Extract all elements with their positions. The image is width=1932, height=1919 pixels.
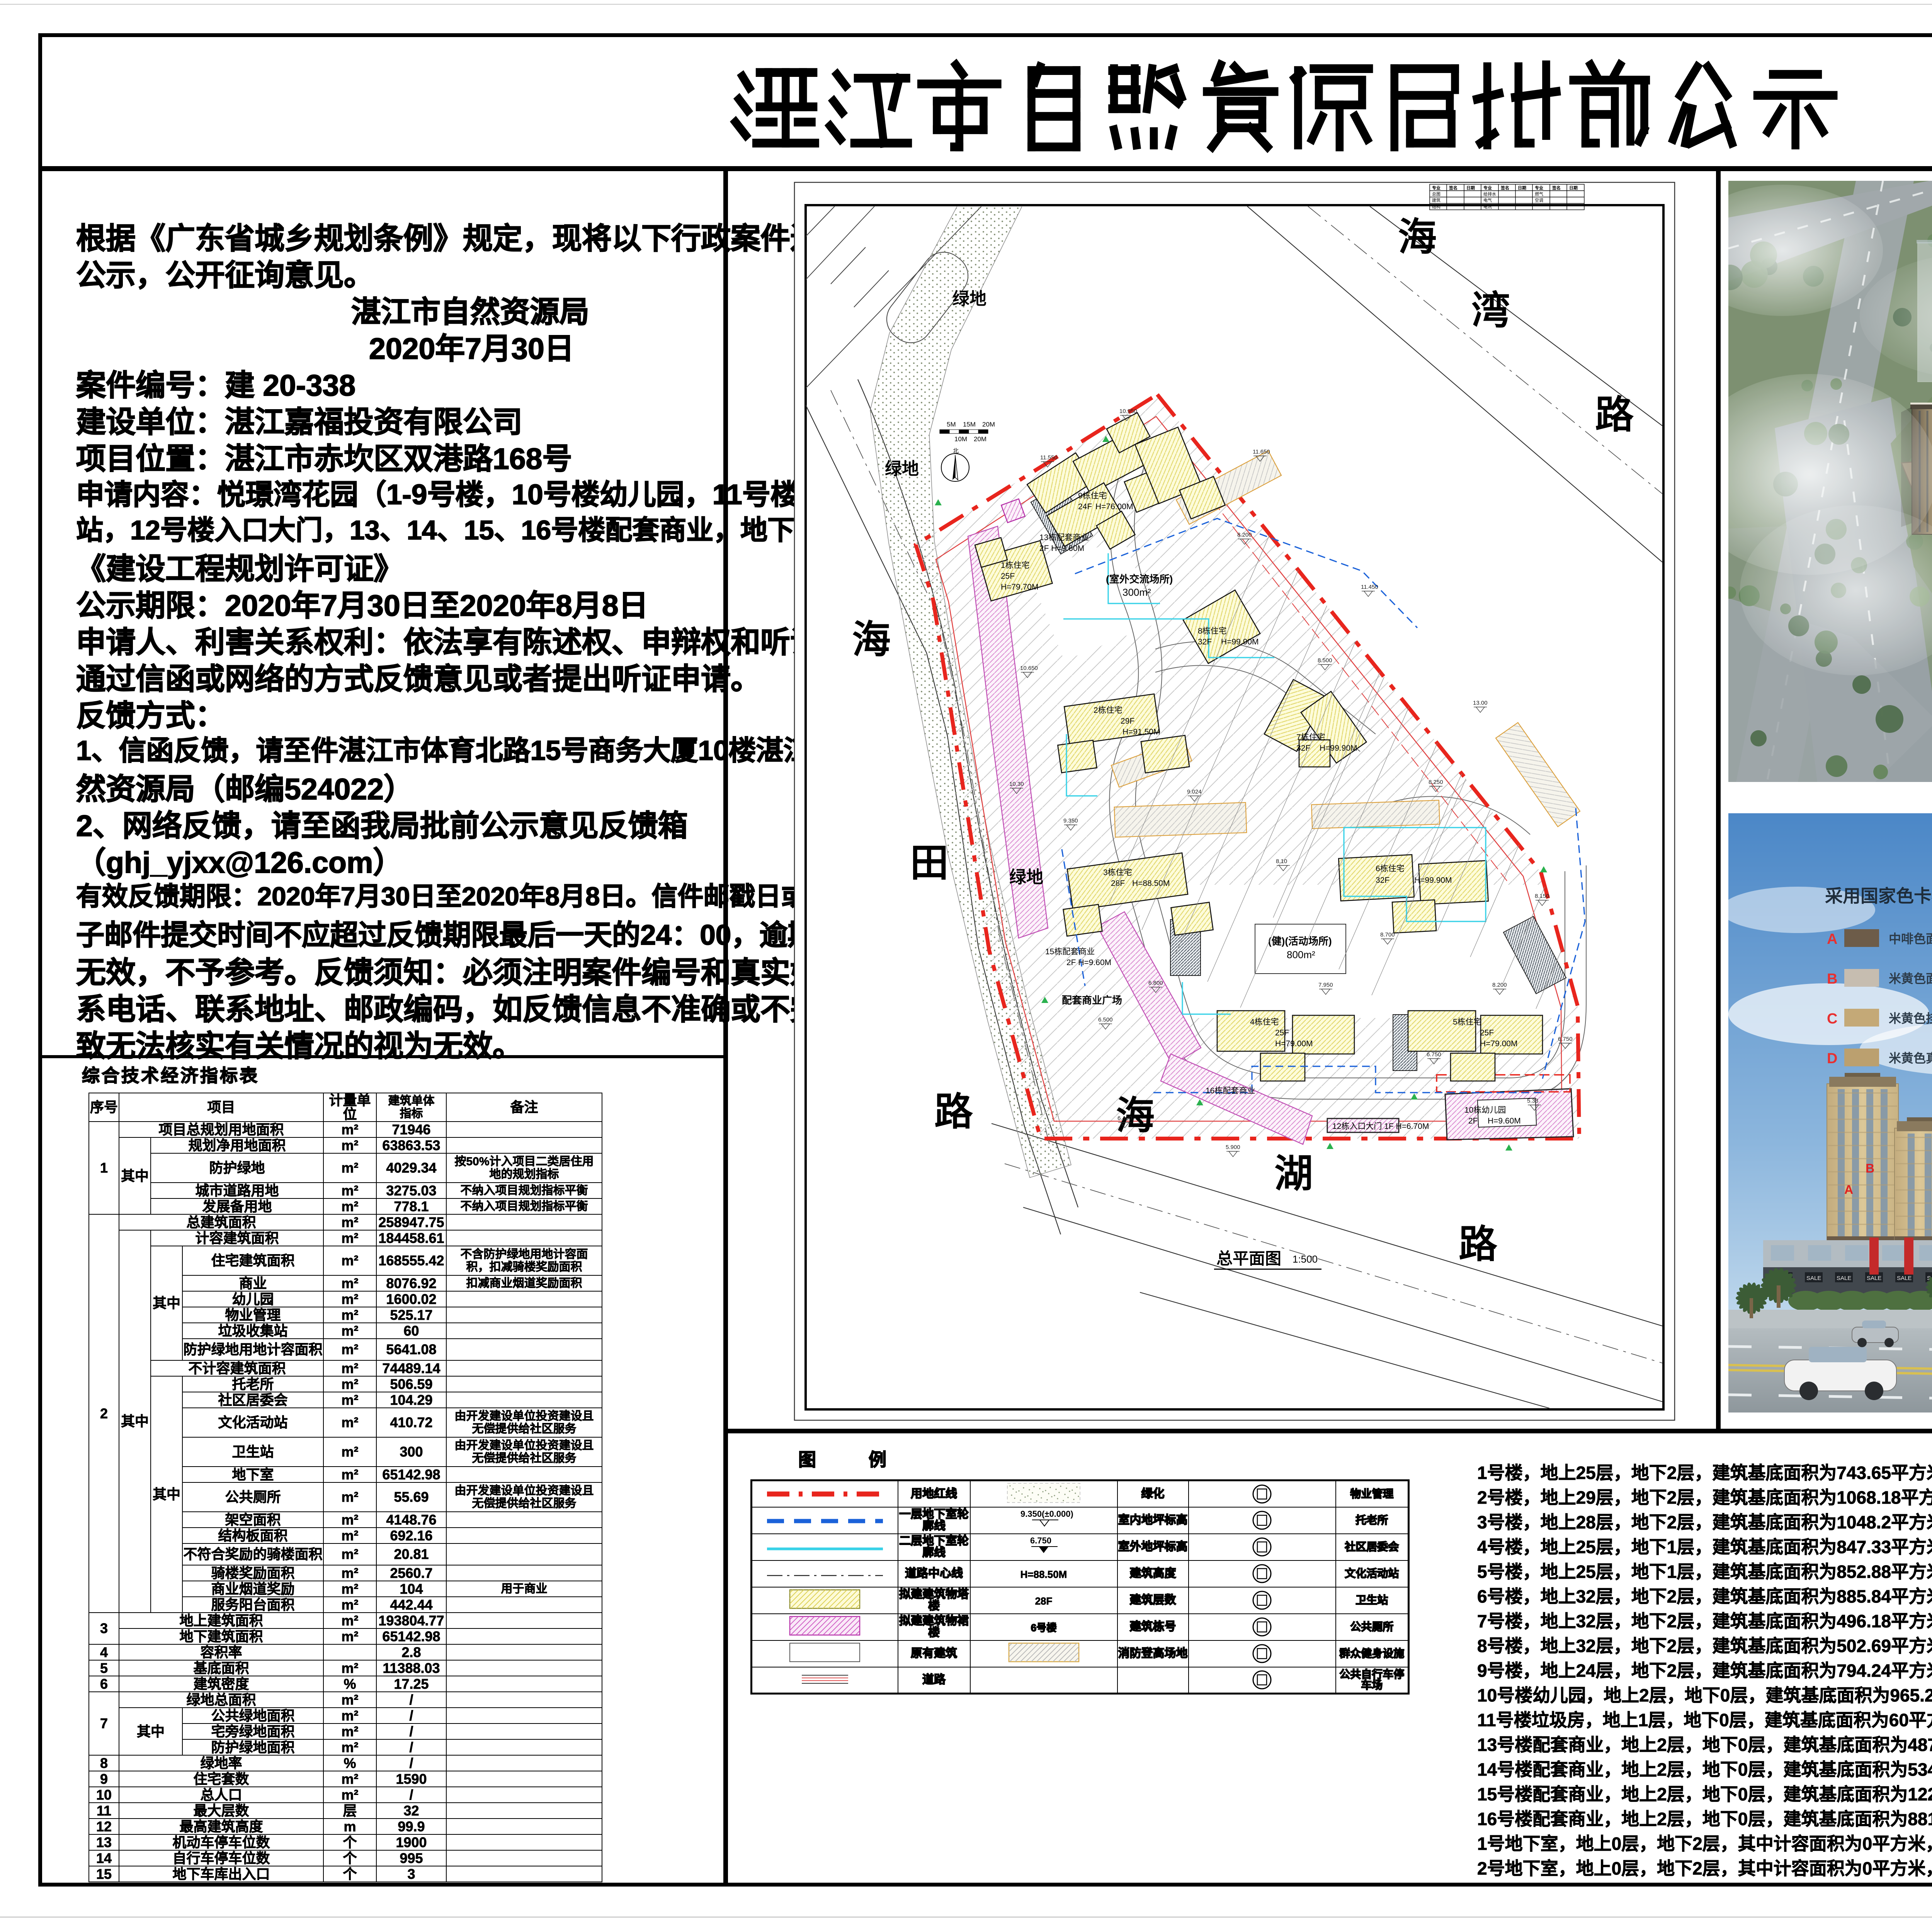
svg-text:总平面图: 总平面图 (1216, 1249, 1281, 1268)
svg-text:海: 海 (1398, 216, 1437, 259)
svg-text:12栋入口大门 1F H=6.70M: 12栋入口大门 1F H=6.70M (1332, 1122, 1429, 1131)
svg-text:2F: 2F (1468, 1117, 1478, 1125)
svg-text:日期: 日期 (1466, 185, 1475, 190)
svg-text:签名: 签名 (1449, 185, 1458, 190)
svg-text:8.500: 8.500 (1318, 657, 1332, 664)
svg-text:8.250: 8.250 (1429, 779, 1443, 785)
svg-text:田: 田 (910, 841, 949, 885)
svg-text:中啡色面砖 国际色号0205: 中啡色面砖 国际色号0205 (1889, 932, 1932, 946)
svg-text:签名: 签名 (1552, 185, 1561, 190)
svg-text:2F H=9.60M: 2F H=9.60M (1039, 544, 1084, 553)
svg-text:6栋住宅: 6栋住宅 (1376, 864, 1405, 873)
svg-text:路: 路 (1459, 1223, 1498, 1266)
svg-text:2F H=9.60M: 2F H=9.60M (1066, 958, 1111, 967)
svg-text:15M: 15M (963, 421, 976, 428)
svg-text:电讯: 电讯 (1483, 204, 1492, 209)
svg-text:采用国家色卡标准中国建筑色卡CBCC编号: 采用国家色卡标准中国建筑色卡CBCC编号 (1825, 886, 1932, 906)
svg-text:给排水: 给排水 (1483, 191, 1496, 197)
svg-text:10.650: 10.650 (1020, 665, 1038, 671)
svg-text:20M: 20M (974, 435, 986, 443)
svg-text:H=91.50M: H=91.50M (1122, 727, 1160, 736)
svg-text:米黄色真石漆: 米黄色真石漆 (1889, 1051, 1932, 1065)
svg-text:H=99.90M: H=99.90M (1221, 637, 1259, 646)
svg-text:总图: 总图 (1432, 191, 1440, 197)
svg-text:32F: 32F (1296, 744, 1310, 753)
svg-text:空调: 空调 (1535, 197, 1543, 203)
svg-text:8.200: 8.200 (1237, 532, 1252, 538)
svg-text:SALE: SALE (1837, 1275, 1851, 1282)
svg-text:32F: 32F (1198, 637, 1212, 646)
svg-text:SALE: SALE (1867, 1275, 1881, 1282)
svg-text:8栋住宅: 8栋住宅 (1198, 627, 1227, 636)
svg-text:11.450: 11.450 (1361, 584, 1378, 590)
svg-text:10栋幼儿园: 10栋幼儿园 (1464, 1106, 1506, 1115)
svg-text:7栋住宅: 7栋住宅 (1296, 733, 1325, 742)
svg-text:8.700: 8.700 (1380, 931, 1395, 938)
svg-text:10M: 10M (954, 435, 967, 443)
svg-text:800m²: 800m² (1287, 949, 1315, 960)
svg-text:11.650: 11.650 (1253, 449, 1270, 455)
svg-text:SALE: SALE (1897, 1275, 1912, 1282)
svg-text:13栋配套商业: 13栋配套商业 (1039, 533, 1089, 542)
svg-text:建筑: 建筑 (1432, 197, 1440, 203)
svg-text:10.950: 10.950 (1119, 408, 1137, 415)
svg-text:29F: 29F (1121, 717, 1134, 726)
svg-text:1:500: 1:500 (1293, 1253, 1318, 1265)
svg-text:4栋住宅: 4栋住宅 (1250, 1018, 1279, 1027)
svg-text:24F: 24F (1078, 502, 1092, 511)
svg-text:专业: 专业 (1483, 185, 1492, 190)
svg-text:电气: 电气 (1483, 197, 1492, 203)
svg-text:配套商业广场: 配套商业广场 (1062, 994, 1122, 1006)
svg-text:B: B (1866, 1161, 1874, 1175)
svg-text:D: D (1827, 1050, 1837, 1067)
svg-text:2栋住宅: 2栋住宅 (1094, 706, 1122, 715)
svg-text:路: 路 (934, 1090, 973, 1134)
svg-text:13.00: 13.00 (1473, 700, 1488, 706)
svg-text:H=79.00M: H=79.00M (1480, 1039, 1517, 1048)
svg-text:(室外交流场所): (室外交流场所) (1106, 573, 1173, 585)
svg-text:B: B (1827, 971, 1837, 987)
svg-text:6.400: 6.400 (1117, 1115, 1132, 1122)
svg-text:9.350: 9.350 (1063, 818, 1078, 824)
svg-text:日期: 日期 (1569, 185, 1578, 190)
svg-text:签名: 签名 (1500, 185, 1509, 190)
svg-text:16栋配套商业: 16栋配套商业 (1206, 1086, 1255, 1095)
svg-text:燃气: 燃气 (1535, 191, 1543, 197)
svg-text:日期: 日期 (1518, 185, 1526, 190)
svg-text:25F: 25F (1480, 1028, 1494, 1037)
svg-text:H=88.50M: H=88.50M (1132, 879, 1170, 888)
svg-text:A: A (1827, 931, 1837, 947)
svg-text:C: C (1827, 1011, 1837, 1027)
svg-text:专业: 专业 (1535, 185, 1543, 190)
svg-text:H=76.00M: H=76.00M (1095, 502, 1133, 511)
svg-text:H=99.90M: H=99.90M (1414, 876, 1452, 885)
svg-text:6.750: 6.750 (1427, 1051, 1441, 1058)
svg-text:7.950: 7.950 (1318, 982, 1333, 988)
svg-text:20M: 20M (982, 421, 995, 428)
svg-text:结构: 结构 (1432, 204, 1440, 209)
svg-text:SALE: SALE (1806, 1275, 1821, 1282)
svg-text:米黄色面砖 国际色号1464: 米黄色面砖 国际色号1464 (1889, 972, 1932, 986)
svg-text:专业: 专业 (1432, 185, 1440, 190)
svg-text:10.30: 10.30 (1009, 781, 1024, 787)
svg-text:6.800: 6.800 (1148, 980, 1163, 986)
svg-text:300m²: 300m² (1122, 586, 1151, 598)
svg-text:15栋配套商业: 15栋配套商业 (1045, 947, 1095, 956)
svg-text:(健)(活动场所): (健)(活动场所) (1268, 935, 1332, 947)
svg-text:8.200: 8.200 (1492, 982, 1507, 988)
svg-text:湾: 湾 (1471, 289, 1510, 332)
svg-text:5M: 5M (947, 421, 956, 428)
svg-text:9.024: 9.024 (1187, 789, 1202, 795)
svg-text:25F: 25F (1001, 572, 1015, 581)
svg-text:25F: 25F (1275, 1028, 1289, 1037)
svg-text:8.10: 8.10 (1276, 858, 1287, 865)
svg-text:6.500: 6.500 (1098, 1016, 1113, 1023)
svg-text:米黄色挂石: 米黄色挂石 (1889, 1011, 1932, 1025)
svg-text:湖: 湖 (1274, 1152, 1313, 1195)
svg-text:9.350(±0.000): 9.350(±0.000) (1020, 1509, 1073, 1519)
svg-text:北: 北 (953, 448, 959, 454)
svg-text:1栋住宅: 1栋住宅 (1001, 561, 1030, 570)
svg-text:绿地: 绿地 (1009, 868, 1043, 887)
svg-text:A: A (1844, 1183, 1853, 1197)
svg-text:绿地: 绿地 (885, 459, 919, 478)
svg-text:6.750: 6.750 (1558, 1036, 1573, 1042)
svg-text:H=9.60M: H=9.60M (1488, 1117, 1521, 1125)
svg-text:5.33: 5.33 (1527, 1098, 1538, 1104)
svg-text:5.900: 5.900 (1226, 1144, 1240, 1151)
svg-text:5栋住宅: 5栋住宅 (1453, 1018, 1482, 1027)
svg-text:11.550: 11.550 (1040, 454, 1058, 461)
svg-text:路: 路 (1595, 393, 1634, 437)
svg-text:H=79.70M: H=79.70M (1001, 583, 1038, 592)
svg-text:绿地: 绿地 (952, 289, 986, 308)
svg-text:H=79.00M: H=79.00M (1275, 1039, 1313, 1048)
svg-text:3栋住宅: 3栋住宅 (1103, 868, 1132, 877)
svg-text:6.750: 6.750 (1030, 1536, 1051, 1545)
svg-text:海: 海 (852, 618, 891, 661)
svg-text:9栋住宅: 9栋住宅 (1078, 491, 1107, 500)
